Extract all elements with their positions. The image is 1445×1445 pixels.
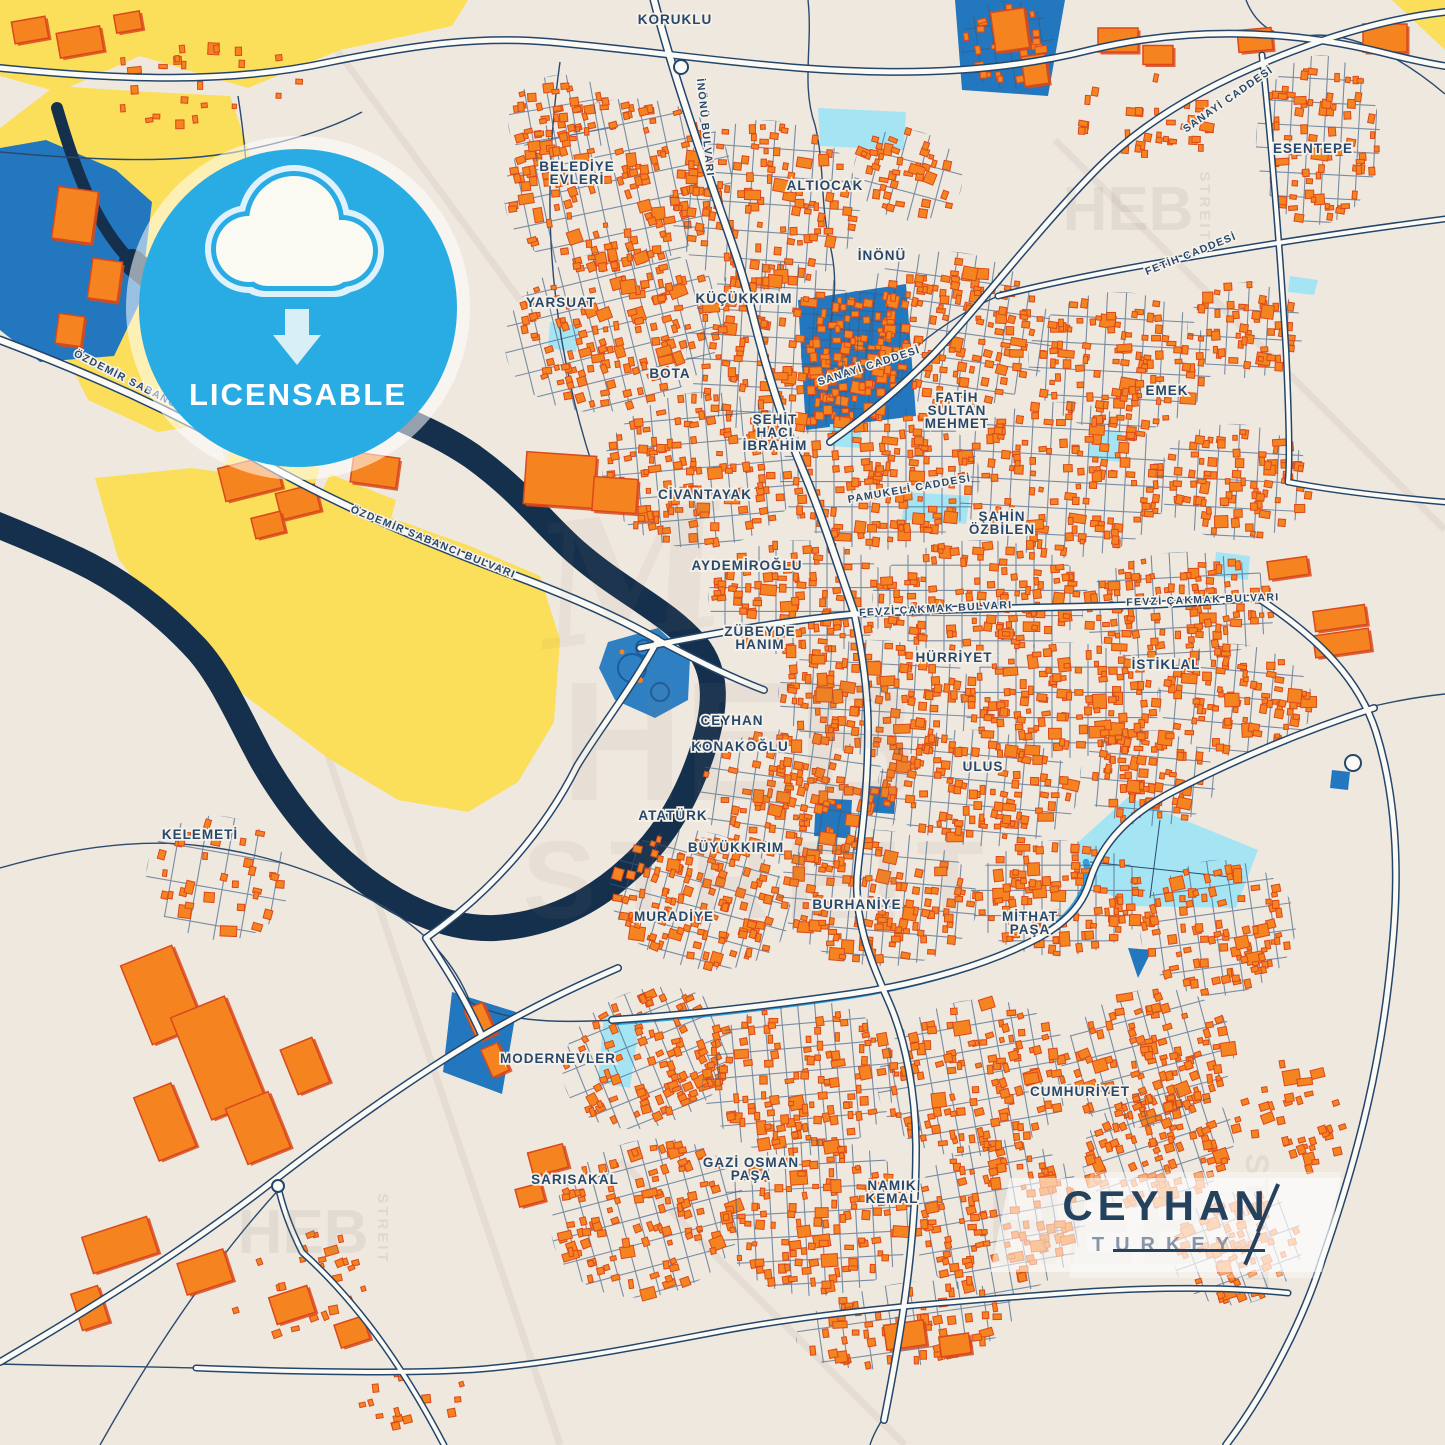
- building: [723, 1214, 729, 1221]
- building: [715, 1079, 720, 1086]
- building: [1092, 850, 1098, 856]
- building: [1139, 1107, 1145, 1112]
- building: [1168, 1136, 1174, 1143]
- building: [392, 1422, 401, 1431]
- building: [1294, 214, 1304, 223]
- building: [1080, 539, 1084, 544]
- building: [1016, 812, 1021, 820]
- building: [921, 577, 926, 582]
- building: [1251, 618, 1259, 624]
- watermark-text: STREIT: [1196, 171, 1213, 242]
- building: [1272, 439, 1286, 446]
- building: [1131, 480, 1136, 485]
- building: [894, 1072, 898, 1076]
- building: [784, 1264, 790, 1271]
- building: [607, 1207, 612, 1212]
- building: [1114, 908, 1119, 915]
- building: [833, 466, 840, 473]
- building: [860, 443, 874, 452]
- building: [788, 1211, 795, 1218]
- building: [1034, 726, 1039, 731]
- building: [1259, 704, 1267, 713]
- building: [1193, 959, 1200, 968]
- building: [1137, 393, 1142, 397]
- building: [921, 1219, 928, 1228]
- building: [1262, 693, 1270, 698]
- building: [815, 398, 820, 407]
- building: [833, 338, 841, 343]
- building: [749, 125, 755, 134]
- building: [898, 364, 907, 370]
- building: [833, 587, 841, 594]
- building: [671, 1074, 679, 1081]
- building: [760, 125, 765, 130]
- building: [751, 144, 759, 150]
- building: [552, 147, 560, 157]
- building: [955, 295, 961, 305]
- building: [1109, 934, 1118, 940]
- building: [635, 326, 641, 333]
- building: [995, 669, 1003, 674]
- building: [1116, 1145, 1124, 1153]
- building: [767, 274, 782, 288]
- building: [949, 348, 955, 353]
- building: [968, 1224, 977, 1230]
- building: [691, 436, 697, 443]
- building: [886, 462, 891, 471]
- building: [1109, 711, 1114, 716]
- building: [912, 381, 917, 389]
- building: [818, 221, 824, 227]
- building: [1066, 414, 1072, 419]
- building: [1250, 481, 1257, 488]
- building: [818, 1092, 827, 1100]
- building: [240, 838, 246, 846]
- building: [1173, 723, 1180, 730]
- building: [1169, 876, 1185, 892]
- building: [1169, 1052, 1178, 1059]
- building: [1035, 45, 1048, 54]
- building: [646, 394, 655, 402]
- building: [1246, 524, 1254, 531]
- building: [826, 192, 834, 202]
- building: [920, 1351, 927, 1360]
- building: [953, 1020, 972, 1036]
- building: [601, 400, 610, 407]
- building: [864, 478, 873, 484]
- building: [1048, 802, 1055, 811]
- building: [1196, 353, 1203, 360]
- building: [639, 445, 648, 453]
- building: [773, 373, 788, 380]
- building: [933, 1107, 941, 1117]
- building: [979, 339, 986, 344]
- building: [937, 1196, 942, 1203]
- building: [880, 577, 892, 586]
- building: [1213, 346, 1217, 353]
- building: [1298, 465, 1304, 471]
- building: [1149, 758, 1157, 766]
- building: [665, 1107, 673, 1116]
- building: [992, 1079, 999, 1086]
- building: [596, 92, 602, 101]
- building: [1211, 639, 1218, 647]
- building: [972, 618, 976, 623]
- roundabout: [1345, 755, 1361, 771]
- building: [1160, 629, 1165, 635]
- building: [1086, 650, 1091, 659]
- building: [687, 208, 696, 217]
- building: [1156, 137, 1163, 143]
- building: [610, 452, 619, 460]
- building: [793, 573, 798, 581]
- building: [972, 1193, 979, 1202]
- building: [991, 474, 998, 481]
- building: [878, 328, 883, 332]
- building: [1000, 791, 1008, 797]
- building: [1179, 907, 1187, 916]
- building: [875, 312, 881, 320]
- building: [750, 260, 760, 270]
- building: [819, 1240, 828, 1246]
- building: [623, 112, 630, 119]
- building: [724, 432, 732, 438]
- building: [794, 1072, 799, 1079]
- building: [667, 1240, 672, 1245]
- building: [1290, 195, 1297, 200]
- district-label: BURHANİYE: [812, 897, 901, 912]
- building: [1169, 772, 1176, 777]
- building: [1259, 510, 1270, 518]
- building: [950, 1008, 957, 1015]
- building: [1126, 581, 1133, 590]
- building: [1374, 146, 1379, 152]
- building: [1231, 1124, 1241, 1134]
- building: [1136, 352, 1142, 360]
- building: [971, 1246, 976, 1252]
- district-label: MİTHATPAŞA: [1002, 909, 1058, 937]
- building: [1104, 531, 1110, 539]
- building: [1044, 626, 1051, 633]
- building: [679, 1166, 686, 1171]
- building: [1144, 355, 1151, 360]
- building: [1369, 167, 1375, 175]
- building: [1122, 668, 1128, 674]
- building: [1196, 577, 1202, 582]
- building: [949, 1263, 959, 1272]
- building: [640, 165, 649, 175]
- building: [1125, 772, 1132, 778]
- building: [1355, 92, 1362, 102]
- building: [988, 702, 997, 711]
- building: [1009, 615, 1018, 622]
- building: [1129, 914, 1140, 925]
- building: [849, 1266, 858, 1271]
- building: [1122, 630, 1131, 637]
- building: [1149, 709, 1156, 716]
- building: [1122, 746, 1128, 754]
- building: [552, 89, 559, 94]
- building: [744, 190, 760, 200]
- building: [868, 345, 875, 350]
- building: [1087, 393, 1093, 402]
- building: [1100, 459, 1107, 466]
- building: [510, 167, 519, 175]
- building: [705, 394, 711, 400]
- building: [748, 1026, 755, 1035]
- building: [1050, 499, 1058, 505]
- building: [1213, 706, 1219, 711]
- building: [582, 1228, 591, 1236]
- building: [1163, 1102, 1174, 1113]
- building: [615, 361, 621, 368]
- building: [946, 1284, 951, 1291]
- building: [1288, 322, 1293, 330]
- building: [521, 181, 531, 191]
- building: [861, 459, 869, 466]
- highlight-district-area: [1330, 770, 1350, 790]
- industrial-building: [1143, 46, 1173, 65]
- building: [872, 1237, 881, 1244]
- building: [1020, 314, 1028, 320]
- building: [1113, 359, 1119, 364]
- building: [1115, 322, 1121, 328]
- building: [1251, 1130, 1259, 1138]
- building: [1075, 690, 1083, 696]
- building: [970, 1169, 975, 1174]
- building: [790, 227, 797, 235]
- building: [774, 1043, 780, 1049]
- building: [1108, 518, 1114, 525]
- building: [1216, 920, 1223, 929]
- building: [921, 1022, 927, 1030]
- building: [764, 149, 768, 154]
- building: [734, 598, 742, 605]
- building: [925, 1202, 939, 1214]
- building: [1216, 624, 1221, 632]
- building: [923, 286, 928, 293]
- district-label: CUMHURİYET: [1030, 1084, 1130, 1099]
- building: [718, 326, 727, 333]
- building: [1240, 956, 1248, 964]
- building: [660, 231, 667, 238]
- building: [770, 133, 779, 140]
- building: [1233, 868, 1242, 882]
- building: [1198, 563, 1206, 568]
- building: [963, 639, 971, 646]
- building: [1140, 498, 1147, 503]
- building: [527, 93, 536, 102]
- badge-label: LICENSABLE: [139, 377, 457, 413]
- building: [826, 397, 834, 402]
- building: [1029, 296, 1035, 302]
- building: [1038, 813, 1054, 821]
- district-label: YARSUAT: [526, 295, 596, 310]
- building: [1193, 890, 1199, 897]
- building: [972, 1086, 979, 1092]
- building: [1104, 594, 1112, 601]
- building: [798, 495, 807, 504]
- building: [835, 395, 849, 406]
- building: [797, 582, 806, 589]
- building: [1071, 844, 1080, 852]
- building: [909, 459, 918, 466]
- building: [1233, 612, 1239, 618]
- building: [1176, 797, 1192, 810]
- building: [789, 1101, 794, 1105]
- building: [663, 216, 675, 224]
- building: [934, 772, 941, 778]
- building: [1091, 87, 1099, 96]
- building: [753, 600, 762, 606]
- building: [769, 1018, 778, 1022]
- building: [606, 380, 616, 389]
- building: [891, 1086, 897, 1095]
- building: [1015, 844, 1030, 851]
- building: [1016, 635, 1024, 641]
- building: [175, 55, 180, 62]
- building: [795, 488, 803, 494]
- building: [1262, 699, 1268, 704]
- building: [1108, 327, 1115, 334]
- building: [1185, 730, 1194, 734]
- building: [361, 1286, 366, 1292]
- building: [1155, 325, 1162, 334]
- building: [1010, 350, 1024, 358]
- building: [1211, 331, 1220, 340]
- building: [975, 578, 980, 584]
- building: [1272, 900, 1279, 908]
- building: [798, 268, 805, 277]
- building: [1168, 584, 1174, 592]
- building: [760, 139, 769, 144]
- building: [1132, 1061, 1137, 1068]
- building: [1276, 908, 1283, 918]
- building: [1053, 937, 1059, 943]
- building: [1240, 430, 1246, 435]
- building: [1057, 713, 1066, 721]
- watermark-text: HEB: [1063, 175, 1194, 244]
- building: [1218, 1026, 1228, 1036]
- building: [1015, 1141, 1024, 1149]
- building: [610, 1256, 617, 1261]
- building: [959, 377, 969, 387]
- building: [848, 1111, 853, 1118]
- building: [1261, 1087, 1267, 1093]
- building: [894, 448, 899, 454]
- building: [760, 1211, 766, 1217]
- building: [847, 1128, 855, 1135]
- building: [1250, 503, 1257, 510]
- building: [650, 1145, 657, 1151]
- building: [1151, 698, 1161, 707]
- building: [925, 370, 931, 378]
- building: [1332, 104, 1336, 110]
- building: [752, 1203, 758, 1210]
- building: [1017, 551, 1023, 558]
- title-underline: [1113, 1249, 1265, 1252]
- building: [688, 341, 695, 349]
- building: [578, 330, 587, 338]
- building: [999, 1088, 1010, 1098]
- building: [635, 1178, 644, 1188]
- building: [1092, 694, 1106, 709]
- building: [551, 285, 557, 290]
- building: [669, 1264, 679, 1272]
- building: [276, 93, 281, 98]
- building: [1140, 1046, 1149, 1053]
- building: [204, 892, 215, 902]
- building: [1152, 335, 1161, 341]
- building: [965, 1313, 972, 1322]
- building: [1042, 876, 1051, 885]
- building: [738, 1214, 745, 1219]
- building: [915, 173, 924, 181]
- building: [1006, 547, 1015, 555]
- building: [710, 1247, 717, 1254]
- building: [968, 702, 975, 709]
- building: [907, 593, 915, 599]
- building: [1151, 613, 1160, 620]
- building: [1089, 482, 1096, 488]
- building: [1003, 884, 1011, 892]
- building: [695, 223, 704, 232]
- building: [1258, 953, 1265, 961]
- building: [783, 1252, 789, 1260]
- building: [1030, 458, 1036, 465]
- building: [1308, 68, 1318, 75]
- building: [1092, 457, 1098, 462]
- building: [1192, 136, 1200, 142]
- building: [1144, 133, 1152, 142]
- building: [1190, 609, 1198, 616]
- building: [933, 513, 941, 518]
- building: [928, 506, 937, 512]
- building: [931, 557, 936, 565]
- building: [949, 466, 956, 471]
- building: [1328, 127, 1336, 136]
- building: [806, 274, 811, 280]
- building: [561, 83, 570, 90]
- building: [821, 309, 826, 318]
- building: [914, 1060, 920, 1066]
- building: [328, 1305, 338, 1315]
- building: [1271, 884, 1280, 893]
- building: [810, 353, 817, 362]
- building: [722, 360, 730, 366]
- building: [1000, 1113, 1009, 1121]
- district-label: ULUS: [963, 759, 1004, 774]
- building: [1207, 329, 1212, 336]
- building: [1227, 301, 1234, 308]
- building: [1229, 482, 1242, 491]
- building: [1282, 86, 1288, 92]
- building: [1052, 843, 1058, 852]
- building: [1275, 355, 1280, 363]
- building: [650, 323, 657, 331]
- building: [1006, 327, 1014, 335]
- building: [809, 1259, 819, 1267]
- district-label: NAMIKKEMAL: [866, 1178, 919, 1206]
- building: [519, 91, 525, 96]
- building: [1050, 359, 1055, 368]
- building: [764, 1269, 772, 1279]
- building: [1266, 899, 1271, 904]
- building: [703, 315, 708, 322]
- building: [1218, 440, 1226, 448]
- building: [1097, 646, 1102, 653]
- building: [153, 114, 160, 119]
